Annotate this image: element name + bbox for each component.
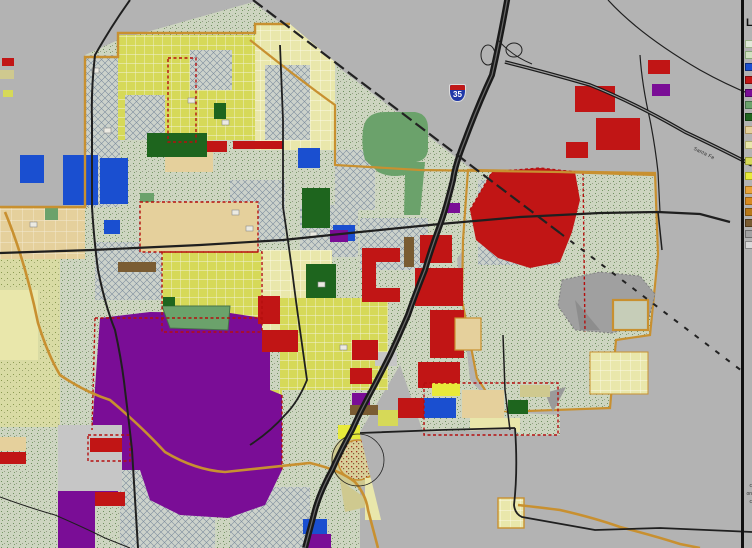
legend-swatch <box>745 126 752 134</box>
footnote-fragment: c <box>738 498 752 506</box>
legend-swatch <box>745 141 752 149</box>
legend-swatch <box>745 208 752 216</box>
legend-swatch-column <box>745 0 752 548</box>
legend-swatch <box>745 101 752 109</box>
interstate-35-shield-icon: 35 <box>449 84 466 102</box>
legend-swatch <box>745 40 752 48</box>
zoning-map-viewport[interactable]: 35 Santa Fe L c on c <box>0 0 752 548</box>
legend-footnote-fragments: c on c <box>738 482 752 506</box>
legend-swatch <box>745 113 752 121</box>
legend-swatch <box>745 241 752 249</box>
legend-swatch <box>745 197 752 205</box>
legend-swatch <box>745 89 752 97</box>
legend-swatch <box>745 51 752 59</box>
footnote-fragment: on <box>738 490 752 498</box>
legend-swatch <box>745 63 752 71</box>
interstate-number: 35 <box>450 90 465 100</box>
legend-swatch <box>745 157 752 165</box>
legend-swatch <box>745 76 752 84</box>
legend-swatch <box>745 186 752 194</box>
legend-swatch <box>745 230 752 238</box>
legend-panel-border <box>741 0 744 548</box>
legend-swatch <box>745 172 752 180</box>
footnote-fragment: c <box>738 482 752 490</box>
map-canvas <box>0 0 752 548</box>
legend-swatch <box>745 219 752 227</box>
